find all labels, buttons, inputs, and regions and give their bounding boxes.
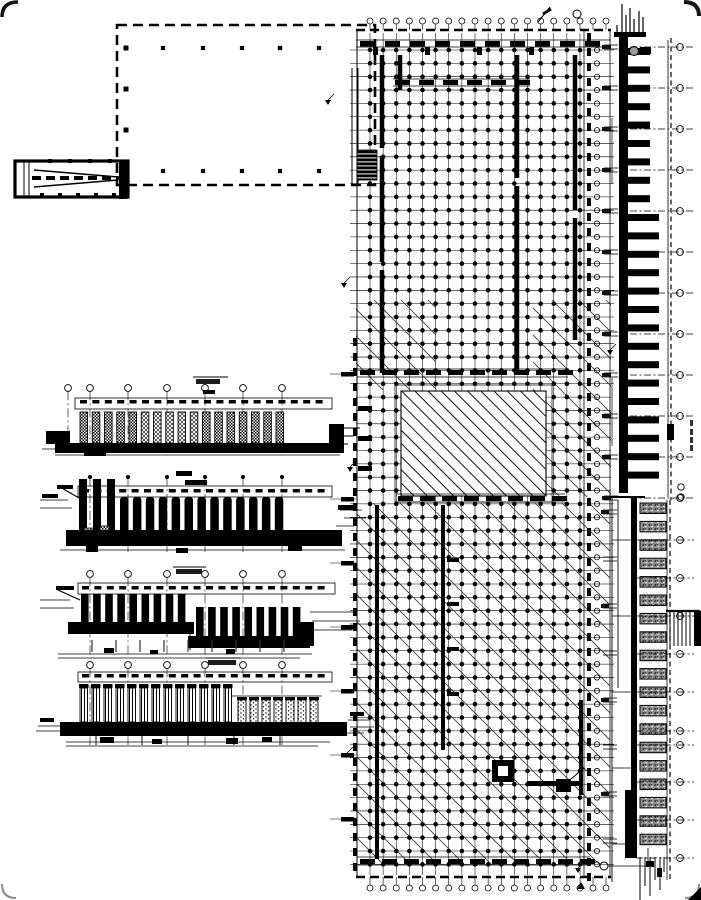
- pile-dot: [407, 381, 412, 386]
- pile-cap: [175, 684, 185, 688]
- pile-section-1: [42, 377, 360, 456]
- pile-dot: [407, 61, 412, 66]
- wall-stub: [447, 692, 459, 696]
- pile-dot: [420, 595, 425, 600]
- pile-dot: [460, 715, 465, 720]
- pile-dot: [381, 742, 386, 747]
- pile-dot: [565, 835, 570, 840]
- wall-tick: [94, 193, 98, 197]
- beam-dash: [94, 586, 101, 590]
- pile-dot: [538, 582, 543, 587]
- pile-dot: [512, 582, 517, 587]
- pile-dot: [578, 635, 583, 640]
- pile-box: [640, 540, 666, 551]
- pile-dot: [407, 675, 412, 680]
- pile-dot: [565, 715, 570, 720]
- axis-bubble: [485, 885, 491, 891]
- pile-dot: [473, 101, 478, 106]
- pile-dot: [538, 849, 543, 854]
- beam-dash: [107, 674, 114, 678]
- border-dash: [587, 543, 591, 551]
- wall-dash: [464, 496, 479, 501]
- ramp-dash: [32, 176, 41, 180]
- drawing-sheet: [0, 0, 701, 900]
- pile-column: [190, 412, 198, 443]
- pile-column: [224, 688, 232, 722]
- pile-dot: [473, 288, 478, 293]
- pile-column-solid: [159, 497, 168, 535]
- pile-dot: [578, 261, 583, 266]
- pile-dot: [460, 809, 465, 814]
- pile-bar: [628, 472, 659, 479]
- pile-dot: [394, 381, 399, 386]
- pile-dot: [578, 475, 583, 480]
- pile-dot: [394, 155, 399, 160]
- border-dash: [587, 483, 591, 491]
- pile-bar: [628, 158, 650, 165]
- pile-dot: [499, 822, 504, 827]
- pile-cap: [211, 684, 221, 688]
- pile-dot: [460, 742, 465, 747]
- pile-cap: [297, 697, 307, 700]
- pile-dot: [525, 515, 530, 520]
- pile-dot: [578, 448, 583, 453]
- pile-bar: [628, 232, 659, 239]
- pile-dot: [551, 301, 556, 306]
- pile-dot: [446, 221, 451, 226]
- pile-dot: [538, 235, 543, 240]
- pile-dot: [394, 702, 399, 707]
- pile-dot: [486, 662, 491, 667]
- pile-dot: [433, 328, 438, 333]
- axis-bubble: [65, 385, 72, 392]
- beam-dash: [194, 489, 201, 493]
- pile-dot: [538, 608, 543, 613]
- border-dash: [353, 578, 357, 586]
- border-dash: [587, 723, 591, 731]
- wall-dash: [467, 80, 482, 85]
- pile-dot: [368, 208, 373, 213]
- pile-dot: [473, 275, 478, 280]
- bracket-line: [58, 590, 80, 600]
- retaining-wall: [619, 35, 628, 493]
- pile-dot: [420, 702, 425, 707]
- pile-dot: [565, 61, 570, 66]
- pile-dot: [460, 662, 465, 667]
- pile-dot: [446, 795, 451, 800]
- axis-bubble: [472, 18, 478, 24]
- wall-dash: [410, 41, 425, 47]
- pile-dot: [460, 261, 465, 266]
- pile-dot: [446, 715, 451, 720]
- beam-dash: [268, 586, 275, 590]
- pile-dot: [512, 568, 517, 573]
- pile-dot: [446, 635, 451, 640]
- pile-dot: [512, 809, 517, 814]
- pile-dot: [512, 648, 517, 653]
- pile-dot: [368, 195, 373, 200]
- pile-cap: [249, 697, 259, 700]
- border-dash: [587, 603, 591, 611]
- pile-dot: [368, 648, 373, 653]
- pile-dot: [473, 555, 478, 560]
- pile-dot: [446, 515, 451, 520]
- pile-cap: [127, 684, 137, 688]
- pile-dot: [446, 702, 451, 707]
- pile-dot: [538, 48, 543, 53]
- level-label: [602, 209, 611, 213]
- pile-column: [140, 688, 148, 722]
- pile-dot: [551, 235, 556, 240]
- pile-dot: [394, 622, 399, 627]
- pile-dot: [394, 595, 399, 600]
- pile-bar: [628, 269, 659, 276]
- pile-dot: [486, 61, 491, 66]
- pile-dot: [525, 355, 530, 360]
- pile-column: [188, 688, 196, 722]
- pile-dot: [407, 288, 412, 293]
- axis-bubble: [380, 18, 386, 24]
- pile-dot: [525, 795, 530, 800]
- pile-dot: [381, 435, 386, 440]
- pile-dot: [578, 155, 583, 160]
- beam-dash: [218, 489, 225, 493]
- pile-dot: [381, 689, 386, 694]
- pile-dot: [446, 61, 451, 66]
- beam-dash: [316, 400, 323, 404]
- pile-dot: [460, 595, 465, 600]
- pile-dot: [381, 48, 386, 53]
- pile-dot: [420, 635, 425, 640]
- border-dash: [587, 588, 591, 596]
- beam-dash: [291, 400, 298, 404]
- column-marker: [201, 169, 206, 174]
- ramp-structure: [15, 159, 128, 199]
- pile-dot: [486, 675, 491, 680]
- axis-bubble: [202, 662, 209, 669]
- wall-dash: [491, 80, 506, 85]
- footing: [100, 737, 114, 743]
- wall-tick: [40, 193, 44, 197]
- pile-dot: [446, 128, 451, 133]
- wall-dash: [508, 496, 523, 501]
- pile-dot: [420, 168, 425, 173]
- pile-dot: [473, 261, 478, 266]
- pile-dot: [578, 315, 583, 320]
- pile-dot: [565, 568, 570, 573]
- pile-dot: [486, 809, 491, 814]
- pile-dot: [512, 608, 517, 613]
- beam-dash: [241, 400, 248, 404]
- column-marker: [278, 169, 283, 174]
- pile-dot: [486, 702, 491, 707]
- column-marker: [240, 46, 245, 51]
- pile-column: [178, 412, 186, 443]
- axis-bubble: [87, 571, 94, 578]
- pile-dot: [486, 48, 491, 53]
- pile-dot: [565, 608, 570, 613]
- pile-dot: [446, 341, 451, 346]
- border-dash: [587, 498, 591, 506]
- axis-bubble: [525, 885, 531, 891]
- border-dash: [587, 468, 591, 476]
- pile-dot: [486, 221, 491, 226]
- pile-dot: [368, 301, 373, 306]
- axis-bubble: [367, 18, 373, 24]
- pile-dot: [538, 715, 543, 720]
- pile-dot: [499, 275, 504, 280]
- pile-dot: [473, 809, 478, 814]
- pile-dot: [473, 155, 478, 160]
- border-dash: [353, 608, 357, 616]
- pile-dot: [460, 341, 465, 346]
- pile-dot: [551, 181, 556, 186]
- pile-dot: [499, 88, 504, 93]
- axis-bubble: [406, 18, 412, 24]
- wall-dash: [470, 370, 485, 375]
- border-dash: [587, 348, 591, 356]
- pile-dot: [394, 769, 399, 774]
- pile-dot: [486, 181, 491, 186]
- pile-dot: [446, 782, 451, 787]
- footing: [226, 738, 238, 744]
- pile-dot: [473, 141, 478, 146]
- level-label: [602, 45, 611, 49]
- pile-dot: [473, 61, 478, 66]
- pile-dot: [565, 301, 570, 306]
- pile-dot: [578, 48, 583, 53]
- pile-dot: [433, 88, 438, 93]
- pile-dot: [499, 568, 504, 573]
- border-dash: [353, 653, 357, 661]
- pile-dot: [486, 301, 491, 306]
- pile-dot: [473, 88, 478, 93]
- pile-dot: [368, 288, 373, 293]
- pile-dot: [499, 555, 504, 560]
- beam-dash: [256, 674, 263, 678]
- level-label: [602, 455, 611, 459]
- axis-bubble: [590, 885, 596, 891]
- pile-dot: [551, 568, 556, 573]
- pile-column: [92, 688, 100, 722]
- pile-cap: [187, 684, 197, 688]
- border-dash: [587, 243, 591, 251]
- pile-cap: [103, 684, 113, 688]
- border-dash: [587, 648, 591, 656]
- axis-bubble: [125, 571, 132, 578]
- pile-dot: [394, 795, 399, 800]
- pile-dot: [381, 715, 386, 720]
- pile-column: [104, 688, 112, 722]
- label-dash: [203, 390, 215, 394]
- pile-dot: [565, 622, 570, 627]
- pile-cap: [223, 684, 233, 688]
- pile-dot: [538, 128, 543, 133]
- pile-dot: [368, 822, 373, 827]
- pile-dot: [460, 88, 465, 93]
- pile-dot: [565, 542, 570, 547]
- pile-dot: [433, 208, 438, 213]
- beam-dash: [119, 489, 126, 493]
- pile-dot: [473, 235, 478, 240]
- pile-column-solid: [105, 594, 113, 624]
- pile-dot: [460, 208, 465, 213]
- pile-dot: [460, 48, 465, 53]
- pile-dot: [460, 114, 465, 119]
- pile-dot: [433, 782, 438, 787]
- pile-dot: [420, 88, 425, 93]
- pile-dot: [538, 155, 543, 160]
- pile-dot: [420, 555, 425, 560]
- pile-section-4: [36, 658, 374, 746]
- pile-dot: [394, 715, 399, 720]
- pile-dot: [473, 515, 478, 520]
- border-dash: [353, 728, 357, 736]
- pile-dot: [565, 74, 570, 79]
- pile-dot: [486, 782, 491, 787]
- pile-dot: [512, 48, 517, 53]
- pile-dot: [407, 742, 412, 747]
- pile-dot: [368, 702, 373, 707]
- axis-bubble: [498, 885, 504, 891]
- pile-dot: [486, 208, 491, 213]
- pile-column-solid: [185, 497, 194, 535]
- pile-dot: [460, 528, 465, 533]
- level-label: [602, 496, 611, 500]
- beam-dash: [144, 586, 151, 590]
- wall-dash: [385, 41, 400, 47]
- beam-dash: [231, 586, 238, 590]
- pile-dot: [420, 648, 425, 653]
- pile-dot: [381, 528, 386, 533]
- wall-tick: [76, 193, 80, 197]
- pile-dot: [565, 635, 570, 640]
- pile-dot: [565, 435, 570, 440]
- pile-dot: [368, 769, 373, 774]
- pile-dot: [486, 341, 491, 346]
- wall-tick: [58, 193, 62, 197]
- pile-column: [154, 412, 162, 443]
- pile-dot: [394, 849, 399, 854]
- pile-dot: [473, 702, 478, 707]
- pile-dot: [368, 261, 373, 266]
- pile-dot: [525, 261, 530, 266]
- pile-dot: [407, 74, 412, 79]
- pile-dot: [578, 568, 583, 573]
- pile-column: [239, 412, 247, 443]
- pile-dot: [407, 275, 412, 280]
- footing: [226, 649, 235, 654]
- pile-dot: [381, 448, 386, 453]
- pile-bar: [628, 361, 659, 368]
- pile-column-solid: [269, 607, 277, 639]
- pile-dot: [551, 715, 556, 720]
- beam-dash: [278, 400, 285, 404]
- beam-dash: [318, 586, 325, 590]
- pile-dot: [420, 528, 425, 533]
- pile-column: [264, 412, 272, 443]
- pile-dot: [473, 849, 478, 854]
- pile-dot: [407, 221, 412, 226]
- pile-dot: [433, 648, 438, 653]
- border-dash: [353, 413, 357, 421]
- pile-dot: [578, 822, 583, 827]
- pile-dot: [433, 822, 438, 827]
- pile-dot: [433, 849, 438, 854]
- pile-dot: [499, 542, 504, 547]
- pile-dot: [394, 462, 399, 467]
- wall-dash: [514, 859, 529, 864]
- pile-dot: [381, 648, 386, 653]
- pile-dot: [394, 341, 399, 346]
- pile-dot: [446, 729, 451, 734]
- pile-column-solid: [208, 607, 216, 639]
- pile-dot: [565, 662, 570, 667]
- border-dash: [587, 363, 591, 371]
- pile-bar: [628, 306, 659, 313]
- pile-column-solid: [223, 497, 232, 535]
- pile-dot: [473, 715, 478, 720]
- pile-dot: [433, 568, 438, 573]
- footing-bit: [657, 868, 662, 877]
- pile-dot: [407, 528, 412, 533]
- level-label: [601, 604, 609, 608]
- pile-dot: [499, 315, 504, 320]
- pile-dot: [368, 181, 373, 186]
- wall-tick: [68, 159, 72, 163]
- axis-bubble: [564, 18, 570, 24]
- pile-dot: [433, 61, 438, 66]
- wall-stub: [447, 602, 459, 606]
- pile-dot: [407, 635, 412, 640]
- pile-column: [166, 412, 174, 443]
- footing: [288, 544, 302, 551]
- pile-dot: [473, 662, 478, 667]
- axis-bubble: [240, 571, 247, 578]
- pile-dot: [433, 355, 438, 360]
- pile-dot: [368, 101, 373, 106]
- axis-bubble: [420, 885, 426, 891]
- pile-dot: [381, 608, 386, 613]
- pile-box: [640, 595, 666, 606]
- axis-bubble: [538, 885, 544, 891]
- pile-dot: [368, 595, 373, 600]
- pile-dot: [420, 622, 425, 627]
- pile-dot: [525, 155, 530, 160]
- pile-dot: [473, 114, 478, 119]
- pile-dot: [433, 769, 438, 774]
- pile-dot: [512, 595, 517, 600]
- pile-dot: [446, 88, 451, 93]
- pile-dot: [368, 235, 373, 240]
- pile-dot: [394, 809, 399, 814]
- border-dash: [353, 638, 357, 646]
- pile-dot: [433, 248, 438, 253]
- level-label: [602, 168, 611, 172]
- pile-dot: [368, 568, 373, 573]
- border-dash: [353, 488, 357, 496]
- pile-dot: [368, 689, 373, 694]
- pile-dot: [420, 355, 425, 360]
- beam-dash: [194, 674, 201, 678]
- pile-dot: [460, 702, 465, 707]
- border-dash: [587, 708, 591, 716]
- pile-dot: [551, 702, 556, 707]
- pile-dot: [433, 155, 438, 160]
- pile-dot: [525, 235, 530, 240]
- beam-dash: [107, 586, 114, 590]
- pile-dot: [394, 488, 399, 493]
